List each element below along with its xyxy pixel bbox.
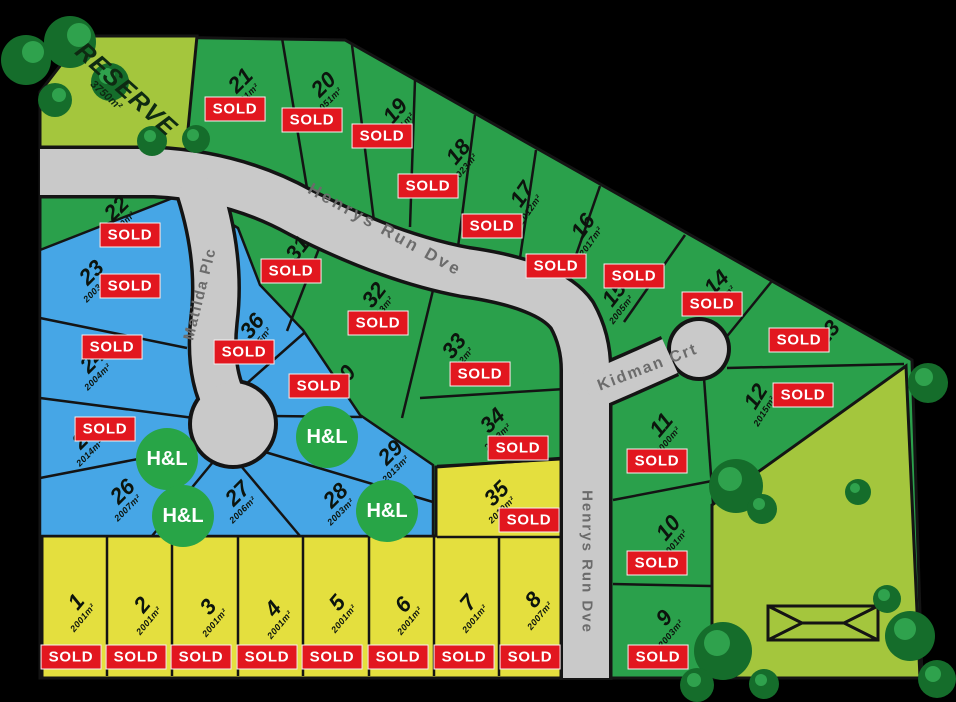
sold-badge-lot-18: SOLD [398, 174, 459, 199]
sold-badge-lot-2: SOLD [106, 645, 167, 670]
sold-badge-lot-1: SOLD [41, 645, 102, 670]
sold-badge-lot-34: SOLD [488, 436, 549, 461]
sold-badge-lot-30: SOLD [289, 374, 350, 399]
lot-27-label: 272006m² [222, 478, 260, 516]
sold-badge-lot-31: SOLD [261, 259, 322, 284]
reserve-name: RESERVE [71, 39, 181, 141]
sold-badge-lot-17: SOLD [462, 214, 523, 239]
sold-badge-lot-36: SOLD [214, 340, 275, 365]
hl-badge-4: H&L [356, 480, 418, 542]
lot-7-label: 72001m² [455, 590, 489, 622]
lot-8-label: 82007m² [520, 587, 554, 619]
sold-badge-lot-23: SOLD [100, 274, 161, 299]
sold-badge-lot-25: SOLD [75, 417, 136, 442]
sold-badge-lot-21: SOLD [205, 97, 266, 122]
label-overlay: RESERVE 3750m² Henrys Run Dve Matilda Pl… [0, 0, 956, 702]
lot-10-label: 102001m² [653, 512, 691, 550]
lot-2-label: 22001m² [129, 592, 163, 624]
sold-badge-lot-19: SOLD [352, 124, 413, 149]
sold-badge-lot-14: SOLD [682, 292, 743, 317]
sold-badge-lot-35: SOLD [499, 508, 560, 533]
lot-11-label: 112000m² [646, 410, 683, 446]
sold-badge-lot-11: SOLD [627, 449, 688, 474]
hl-badge-2: H&L [152, 485, 214, 547]
lot-26-label: 262007m² [107, 476, 145, 514]
sold-badge-lot-20: SOLD [282, 108, 343, 133]
road-label-matilda-plc: Matilda Plc [180, 246, 219, 342]
sold-badge-lot-12: SOLD [773, 383, 834, 408]
sold-badge-lot-3: SOLD [171, 645, 232, 670]
lot-29-label: 292013m² [375, 437, 413, 475]
lot-20-label: 202051m² [308, 69, 346, 107]
sold-badge-lot-15: SOLD [604, 264, 665, 289]
sold-badge-lot-9: SOLD [628, 645, 689, 670]
sold-badge-lot-5: SOLD [302, 645, 363, 670]
sold-badge-lot-10: SOLD [627, 551, 688, 576]
hl-badge-3: H&L [296, 406, 358, 468]
lot-28-label: 282003m² [320, 480, 358, 518]
lot-9-label: 92003m² [651, 605, 685, 637]
lot-4-label: 42001m² [260, 596, 294, 628]
sold-badge-lot-16: SOLD [526, 254, 587, 279]
sold-badge-lot-22: SOLD [100, 223, 161, 248]
reserve-label: RESERVE 3750m² [64, 39, 181, 149]
lot-3-label: 32001m² [195, 594, 229, 626]
sold-badge-lot-32: SOLD [348, 311, 409, 336]
sold-badge-lot-33: SOLD [450, 362, 511, 387]
lot-18-label: 182023m² [443, 136, 481, 174]
hl-badge-1: H&L [136, 428, 198, 490]
lot-6-label: 62001m² [390, 592, 424, 624]
sold-badge-lot-4: SOLD [237, 645, 298, 670]
lot-1-label: 12001m² [63, 589, 97, 621]
road-label-kidman-crt: Kidman Crt [595, 341, 701, 396]
lot-16-label: 162017m² [568, 211, 606, 248]
sold-badge-lot-8: SOLD [500, 645, 561, 670]
sold-badge-lot-7: SOLD [434, 645, 495, 670]
road-label-henrys-run-dve-vertical: Henrys Run Dve [579, 490, 596, 634]
lot-17-label: 172012m² [507, 179, 545, 216]
sold-badge-lot-6: SOLD [368, 645, 429, 670]
lot-5-label: 52001m² [324, 590, 358, 622]
sold-badge-lot-24: SOLD [82, 335, 143, 360]
subdivision-map: RESERVE 3750m² Henrys Run Dve Matilda Pl… [0, 0, 956, 702]
sold-badge-lot-13: SOLD [769, 328, 830, 353]
